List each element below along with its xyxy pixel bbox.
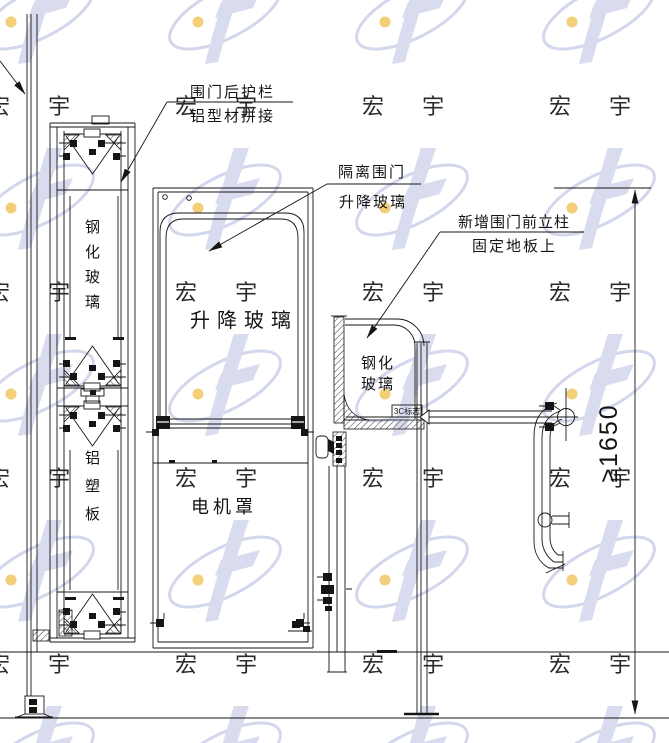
- vertical-label-char: 钢: [85, 219, 100, 236]
- vertical-label-char: 塑: [85, 478, 100, 495]
- vertical-label-char: 璃: [85, 294, 100, 311]
- callout-rear-guard-line2: 铝型材拼接: [190, 108, 275, 125]
- left-column-panel-label: 铝 塑 板: [85, 450, 100, 523]
- callout-rear-guard-line1: 围门后护栏: [190, 84, 275, 101]
- column-bottom-hatch-block: [59, 610, 72, 636]
- vertical-label-char: 铝: [85, 450, 100, 467]
- right-glass-label-line2: 玻璃: [361, 376, 395, 393]
- cad-drawing: 宏 宇: [0, 0, 669, 743]
- vertical-label-char: 化: [85, 244, 100, 261]
- lifting-glass-label: 升降玻璃: [190, 309, 298, 332]
- callout-new-post-line1: 新增围门前立柱: [458, 214, 570, 231]
- wall-side-bracket: [33, 630, 49, 641]
- cad-sheet: 宏 宇: [0, 0, 669, 743]
- callout-isolation-door-line1: 隔离围门: [338, 164, 406, 181]
- right-glass-label-line1: 钢化: [361, 355, 395, 372]
- door-bottom-rail-hatched: [344, 420, 424, 429]
- motor-cover-label: 电机罩: [191, 497, 257, 517]
- cert-mark-label: 3C标志: [394, 406, 420, 416]
- cert-mark-box: 3C标志: [392, 405, 422, 417]
- vertical-label-char: 玻: [85, 269, 100, 286]
- door-post-hatched: [334, 317, 344, 423]
- vertical-label-char: 板: [85, 505, 100, 523]
- callout-new-post-line2: 固定地板上: [472, 237, 557, 255]
- callout-isolation-door-line2: 升降玻璃: [339, 194, 407, 211]
- dimension-text: ≥1650: [595, 403, 623, 482]
